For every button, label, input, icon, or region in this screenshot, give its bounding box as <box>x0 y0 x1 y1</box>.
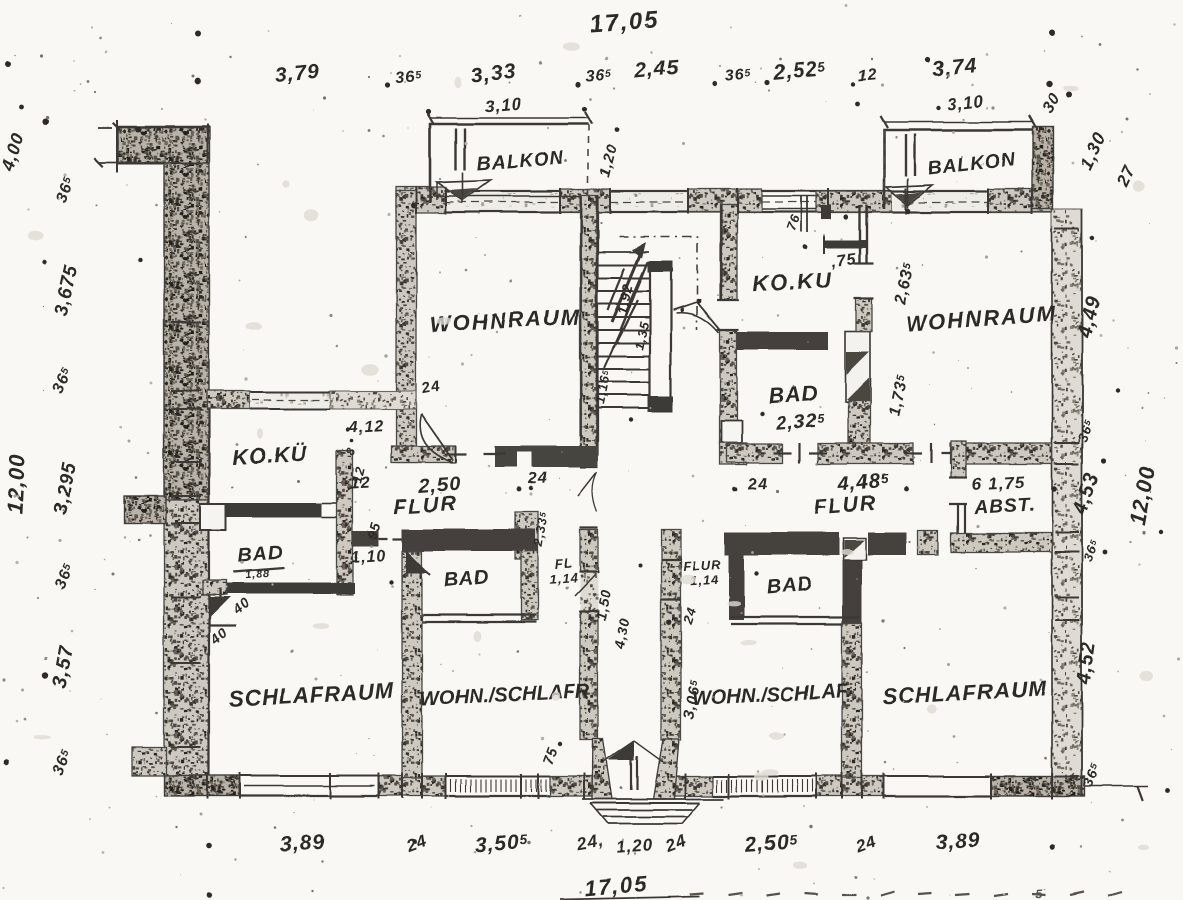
svg-text:,75: ,75 <box>830 250 858 271</box>
svg-text:FLUR: FLUR <box>813 492 878 519</box>
svg-text:ABST.: ABST. <box>973 494 1036 518</box>
svg-text:3,89: 3,89 <box>934 828 980 854</box>
svg-text:2,50: 2,50 <box>416 473 461 498</box>
svg-text:5: 5 <box>1035 886 1044 900</box>
svg-text:24: 24 <box>526 469 548 487</box>
svg-text:17,05: 17,05 <box>589 7 661 39</box>
svg-text:3,74: 3,74 <box>931 54 978 81</box>
svg-text:12,00: 12,00 <box>2 453 30 514</box>
svg-text:4,12: 4,12 <box>348 418 385 437</box>
svg-text:KO.KÜ: KO.KÜ <box>231 441 308 470</box>
svg-text:3,10: 3,10 <box>946 91 985 114</box>
svg-text:BAD: BAD <box>442 566 490 592</box>
svg-text:KO.KU: KO.KU <box>752 267 834 296</box>
svg-text:FL: FL <box>554 556 573 572</box>
svg-text:2,45: 2,45 <box>633 56 681 83</box>
svg-text:12: 12 <box>857 66 878 85</box>
svg-text:24: 24 <box>746 475 768 493</box>
svg-text:1,14: 1,14 <box>549 570 579 587</box>
svg-text:17,05: 17,05 <box>583 870 650 900</box>
svg-text:BAD: BAD <box>237 541 285 566</box>
svg-text:1,88: 1,88 <box>245 568 271 581</box>
svg-text:3,79: 3,79 <box>274 60 321 87</box>
svg-text:BAD: BAD <box>765 573 813 599</box>
svg-text:BAD: BAD <box>767 380 819 408</box>
svg-text:24: 24 <box>420 378 442 398</box>
svg-text:3,89: 3,89 <box>279 830 325 856</box>
svg-text:3,10: 3,10 <box>484 95 522 117</box>
svg-text:1,10: 1,10 <box>351 548 387 567</box>
svg-text:6 1,75: 6 1,75 <box>972 473 1026 495</box>
